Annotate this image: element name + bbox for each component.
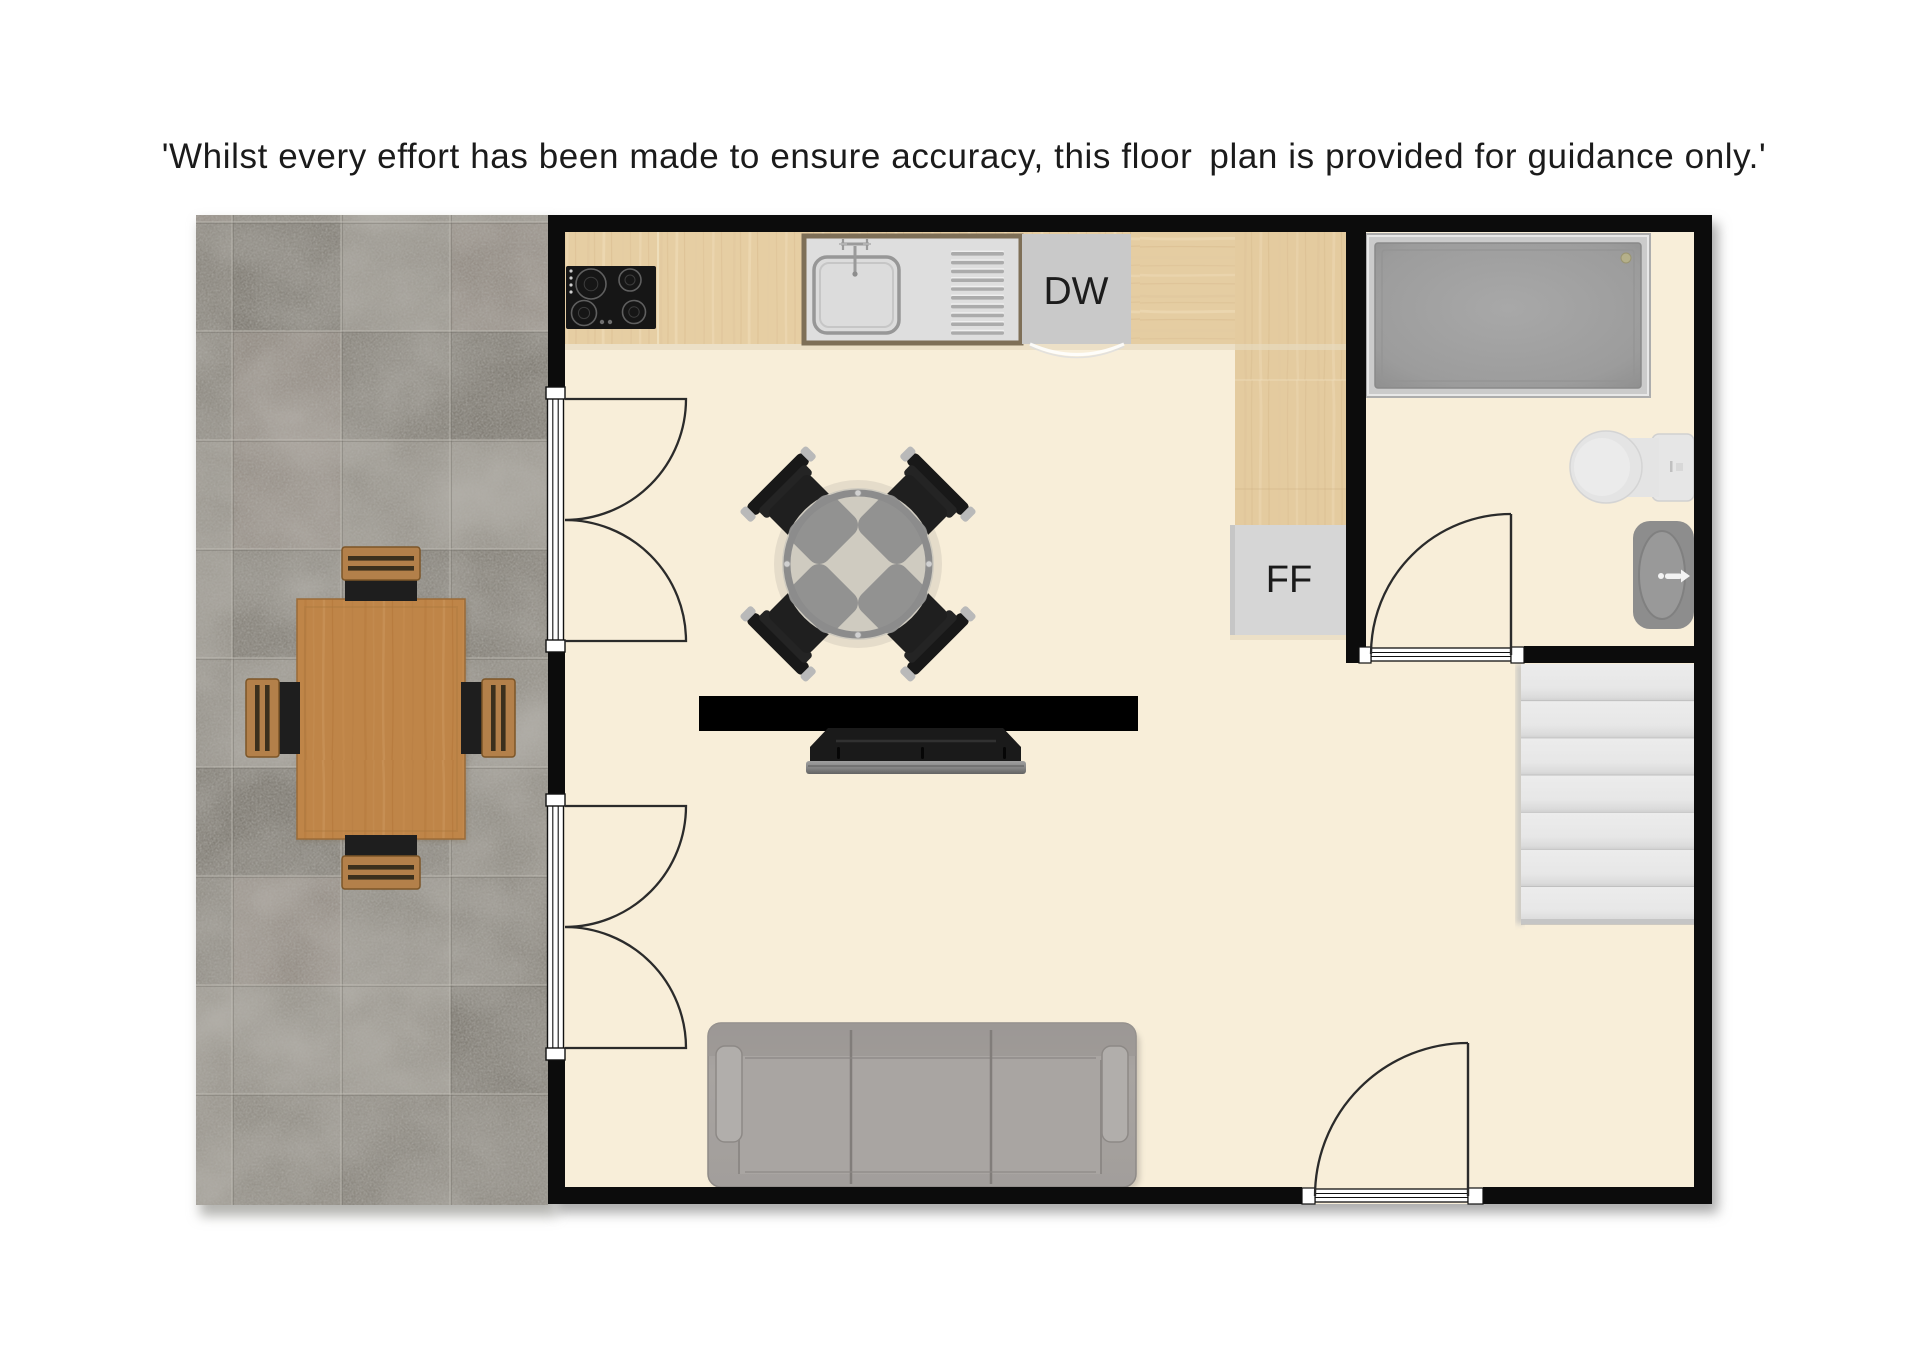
svg-text:FF: FF xyxy=(1266,559,1312,601)
svg-text:DW: DW xyxy=(1044,270,1109,313)
svg-text:'Whilst every effort has been: 'Whilst every effort has been made to en… xyxy=(162,137,1767,176)
